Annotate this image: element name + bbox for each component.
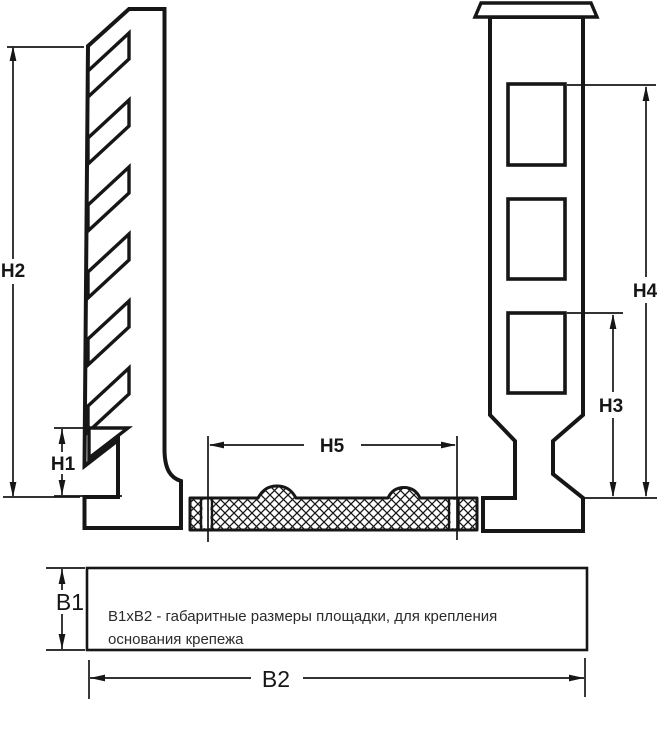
h4-arrow-down	[643, 482, 650, 497]
right-post-cap	[475, 3, 597, 17]
right-post	[475, 3, 597, 531]
fastener-dimension-diagram: H2 H1 H4 H3 H5	[0, 0, 657, 750]
base-plate	[190, 486, 477, 530]
dimension-b2: B2	[89, 658, 585, 699]
b2-arrow-right	[569, 675, 584, 682]
h4-label: H4	[633, 281, 657, 302]
dimension-h2: H2	[1, 46, 84, 497]
h3-arrow-up	[610, 314, 617, 329]
b2-arrow-left	[90, 675, 105, 682]
h1-arrow-up	[59, 429, 66, 444]
post-hole-top	[508, 84, 565, 165]
note-line-2: основания крепежа	[108, 631, 244, 648]
h2-label: H2	[1, 261, 25, 282]
post-hole-bottom	[508, 313, 565, 393]
h3-arrow-down	[610, 482, 617, 497]
h5-arrow-right	[441, 442, 456, 449]
h1-label: H1	[51, 454, 76, 475]
note-line-1: B1xB2 - габаритные размеры площадки, для…	[108, 608, 497, 625]
h5-arrow-left	[209, 442, 224, 449]
plate-left-gap	[203, 500, 211, 528]
left-ratchet-strap	[85, 9, 182, 528]
h3-label: H3	[599, 396, 623, 417]
b1-arrow-up	[59, 569, 66, 584]
base-plate-hatched-bar	[190, 486, 477, 530]
h2-arrow-up	[10, 46, 17, 61]
h1-arrow-down	[59, 480, 66, 495]
note-box: B1xB2 - габаритные размеры площадки, для…	[87, 568, 587, 650]
dimension-b1: B1	[46, 568, 85, 650]
h5-label: H5	[320, 436, 345, 457]
h4-arrow-up	[643, 86, 650, 101]
post-hole-middle	[508, 199, 565, 279]
b1-label: B1	[56, 589, 84, 615]
b2-label: B2	[262, 666, 290, 692]
technical-drawing-canvas: H2 H1 H4 H3 H5	[0, 0, 657, 750]
h2-arrow-down	[10, 482, 17, 497]
b1-arrow-down	[59, 634, 66, 649]
